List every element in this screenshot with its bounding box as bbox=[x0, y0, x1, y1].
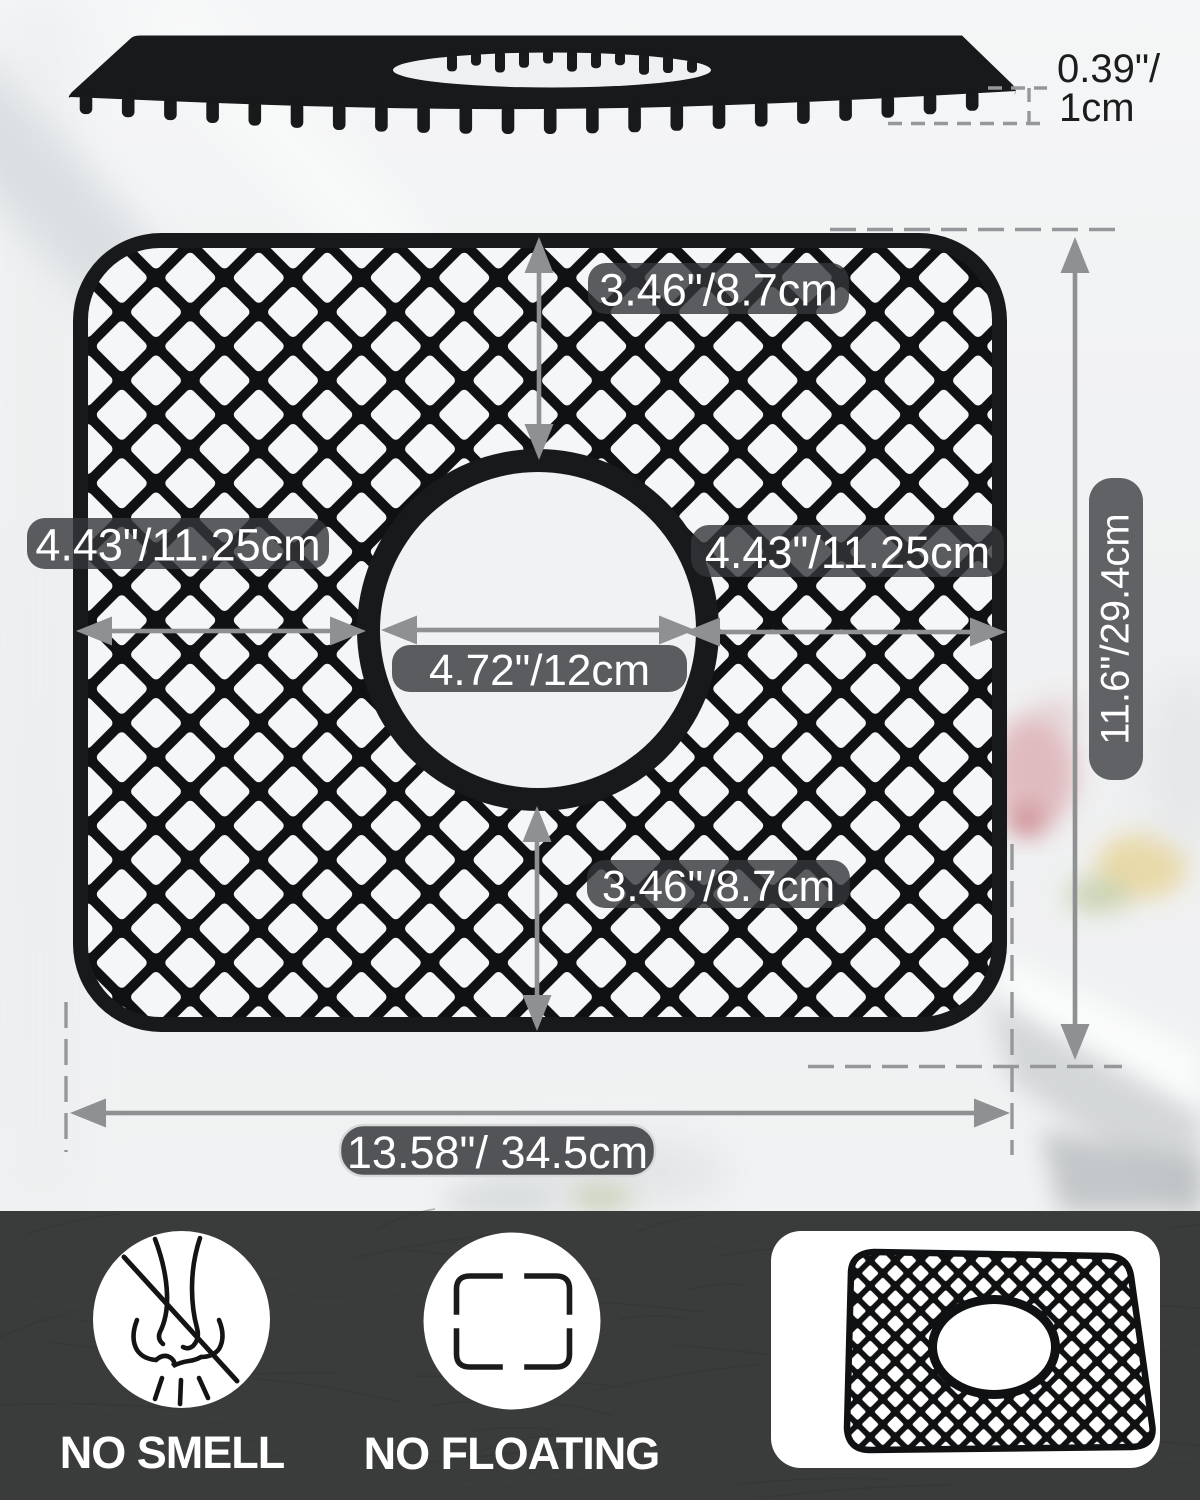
svg-text:NO FLOATING: NO FLOATING bbox=[364, 1428, 660, 1479]
svg-text:NO SMELL: NO SMELL bbox=[60, 1427, 285, 1478]
svg-text:3.46"/8.7cm: 3.46"/8.7cm bbox=[599, 265, 838, 316]
svg-text:3.46"/8.7cm: 3.46"/8.7cm bbox=[602, 862, 835, 911]
svg-text:11.6"/29.4cm: 11.6"/29.4cm bbox=[1094, 513, 1138, 744]
svg-text:13.58"/ 34.5cm: 13.58"/ 34.5cm bbox=[347, 1127, 648, 1178]
svg-text:4.72"/12cm: 4.72"/12cm bbox=[429, 646, 650, 695]
svg-text:1cm: 1cm bbox=[1059, 86, 1135, 130]
svg-text:0.39"/: 0.39"/ bbox=[1057, 47, 1161, 91]
svg-text:4.43"/11.25cm: 4.43"/11.25cm bbox=[705, 527, 990, 578]
svg-text:4.43"/11.25cm: 4.43"/11.25cm bbox=[35, 520, 320, 571]
